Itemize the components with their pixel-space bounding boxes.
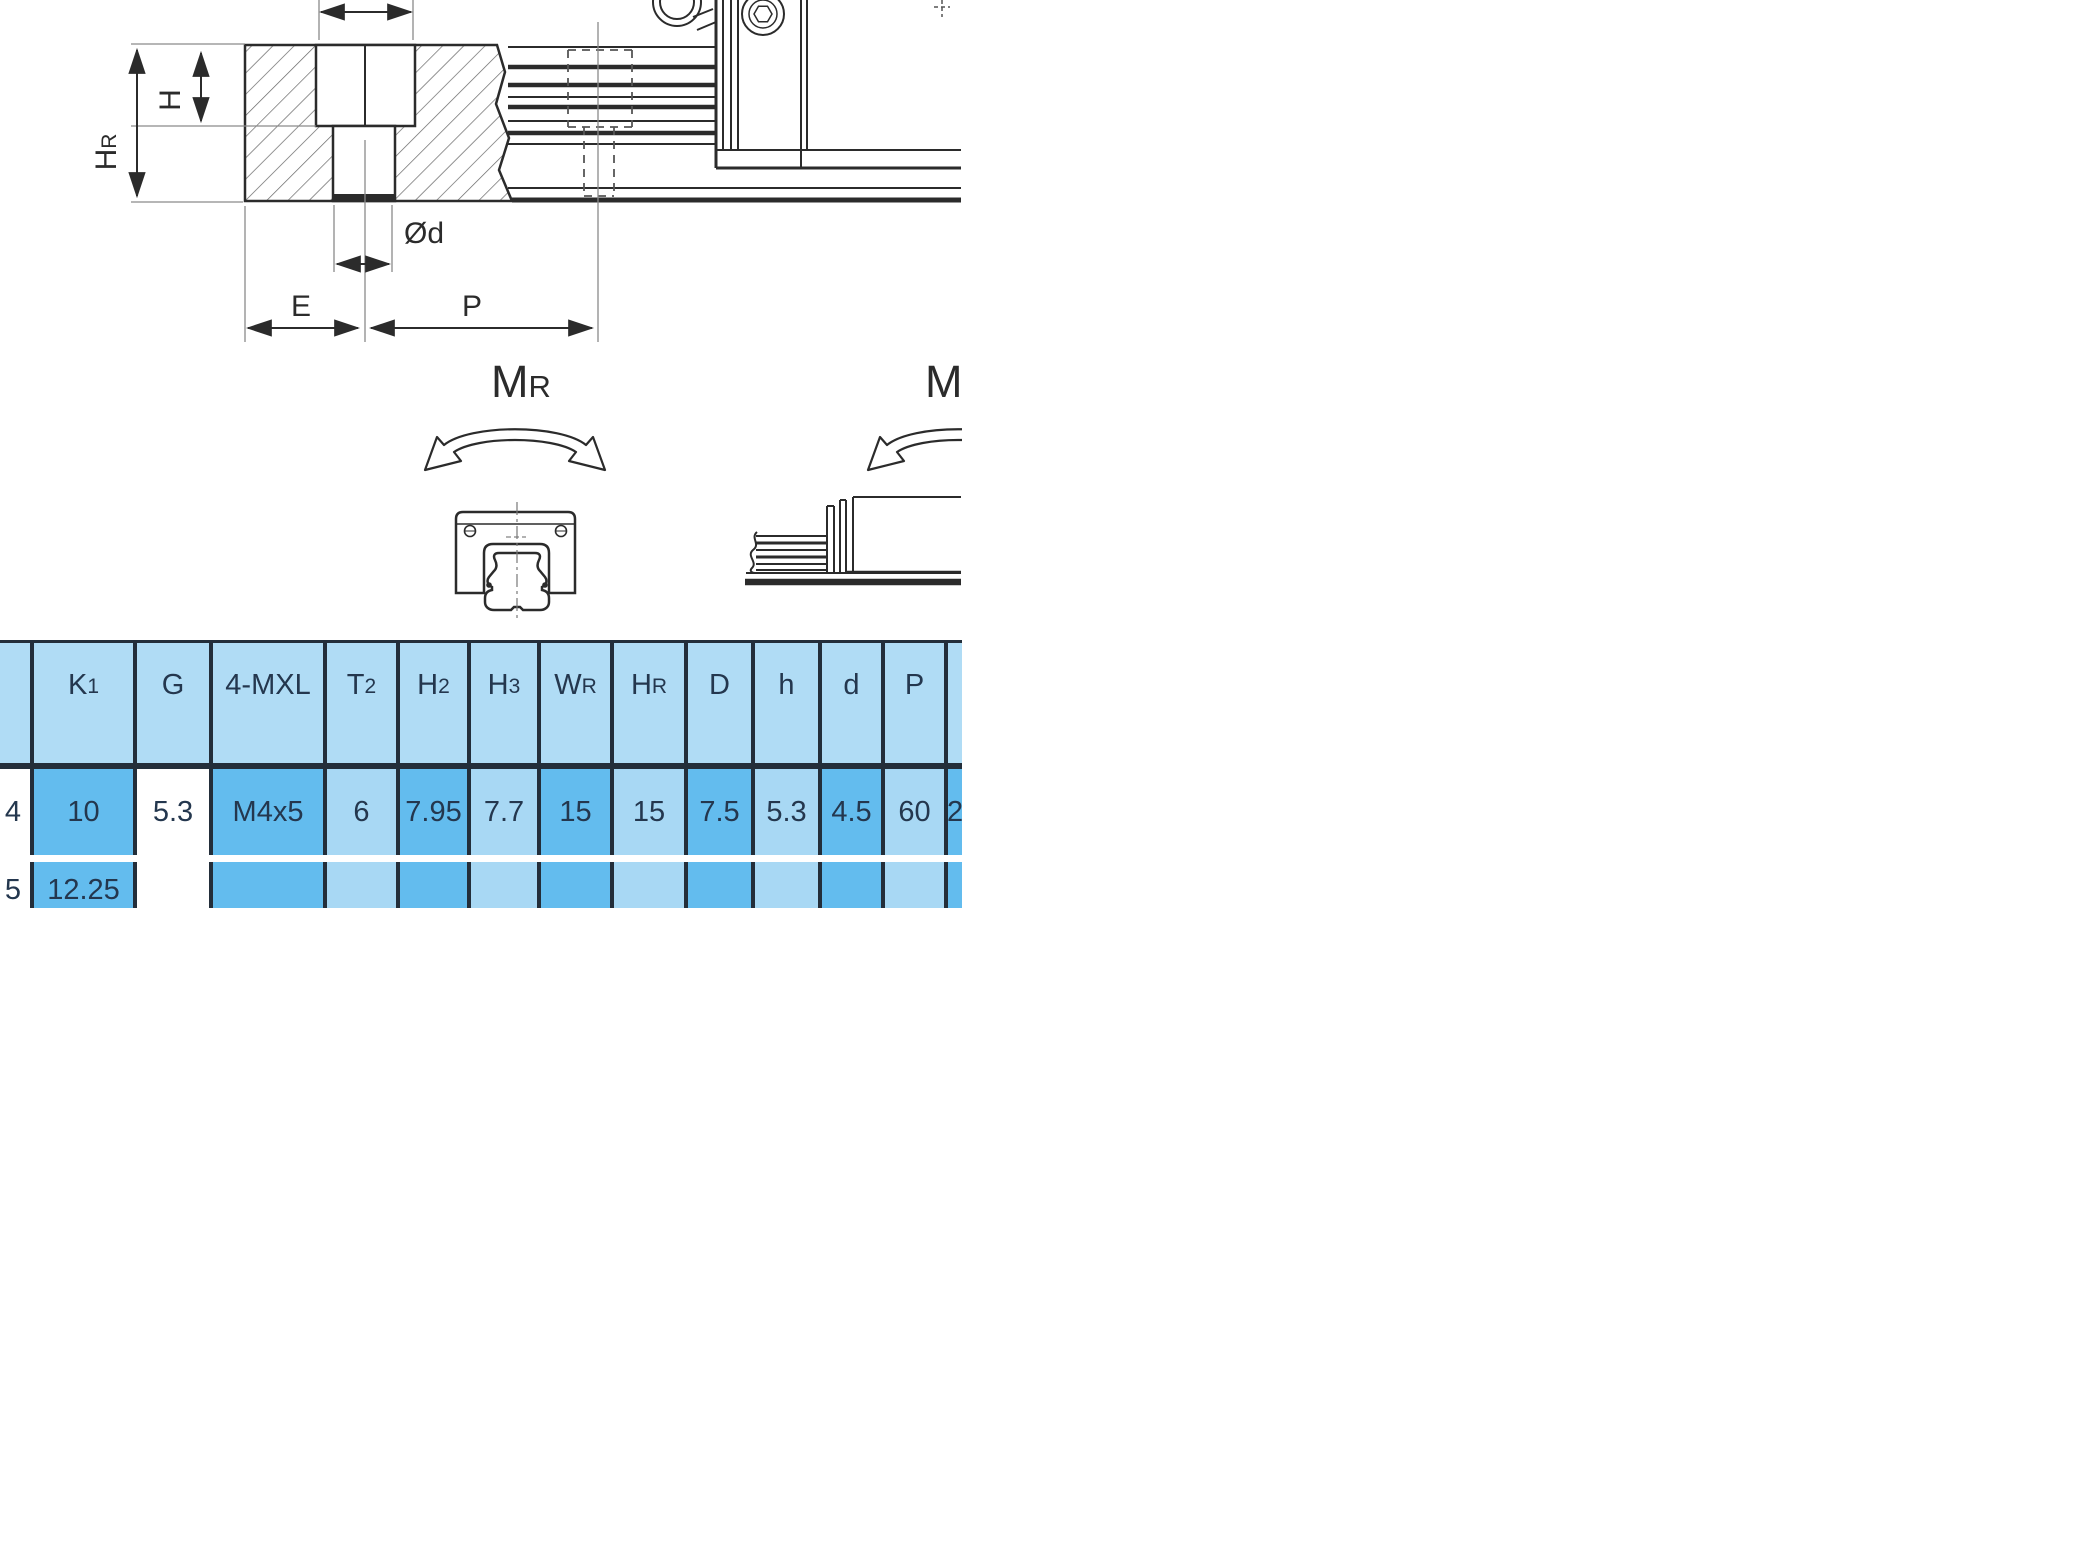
data-cell-r2-p bbox=[881, 862, 944, 908]
data-cell-r2-col13 bbox=[944, 862, 962, 908]
data-cell-r2-h bbox=[467, 862, 537, 908]
data-cell-r1-h: 5.3 bbox=[751, 769, 818, 855]
data-cell-r1-col13: 2 bbox=[944, 769, 962, 855]
data-cell-r2-d bbox=[684, 862, 751, 908]
svg-text:MR: MR bbox=[925, 356, 962, 407]
svg-text:MR: MR bbox=[491, 356, 551, 407]
row-gap bbox=[0, 855, 962, 862]
datasheet-page: HR H Ød E P MR MR bbox=[0, 0, 2080, 1560]
header-cell-t: T2 bbox=[323, 643, 396, 763]
data-cell-r2-t bbox=[323, 862, 396, 908]
spec-table: K1G4-MXLT2H2H3WRHRDhdP4105.3M4x567.957.7… bbox=[0, 640, 962, 908]
header-cell-d: D bbox=[684, 643, 751, 763]
data-cell-r1-t: 6 bbox=[323, 769, 396, 855]
header-cell-4-mxl: 4-MXL bbox=[209, 643, 323, 763]
spec-table-data-row-1: 4105.3M4x567.957.715157.55.34.5602 bbox=[0, 769, 962, 855]
mr-right-curved-arrow bbox=[868, 429, 962, 470]
header-cell-w: WR bbox=[537, 643, 610, 763]
header-cell-col13 bbox=[944, 643, 962, 763]
header-cell-col0 bbox=[0, 643, 30, 763]
header-cell-p: P bbox=[881, 643, 944, 763]
dim-label-p: P bbox=[462, 290, 482, 323]
data-cell-r2-h bbox=[396, 862, 467, 908]
data-cell-r1-k: 10 bbox=[30, 769, 133, 855]
header-cell-h: H2 bbox=[396, 643, 467, 763]
dim-label-hr: HR bbox=[90, 134, 123, 171]
rail-break-edge bbox=[751, 532, 757, 573]
rail-hidden-hole bbox=[568, 50, 632, 196]
data-cell-r2-k: 12.25 bbox=[30, 862, 133, 908]
header-cell-g: G bbox=[133, 643, 209, 763]
carriage-side-view bbox=[745, 497, 961, 582]
data-cell-r2-g bbox=[133, 862, 209, 908]
mr-left-annotation: MR bbox=[425, 356, 605, 470]
grease-point-symbol bbox=[934, 0, 950, 17]
header-cell-h: H3 bbox=[467, 643, 537, 763]
data-cell-r1-p: 60 bbox=[881, 769, 944, 855]
carriage-front-view bbox=[456, 502, 575, 622]
dim-label-od: Ød bbox=[404, 217, 444, 250]
data-cell-r2-d bbox=[818, 862, 881, 908]
dim-label-e: E bbox=[291, 290, 311, 323]
header-cell-d: d bbox=[818, 643, 881, 763]
data-cell-r2-col0: 5 bbox=[0, 862, 30, 908]
rail-side-view bbox=[508, 47, 961, 200]
bolt-hole bbox=[333, 126, 395, 201]
dim-label-h: H bbox=[154, 89, 187, 111]
data-cell-r1-d: 4.5 bbox=[818, 769, 881, 855]
data-cell-r2-h bbox=[610, 862, 684, 908]
data-cell-r1-g: 5.3 bbox=[133, 769, 209, 855]
data-cell-r1-h: 7.95 bbox=[396, 769, 467, 855]
data-cell-r2-h bbox=[751, 862, 818, 908]
header-cell-h: h bbox=[751, 643, 818, 763]
cap-screw-head bbox=[742, 0, 784, 35]
data-cell-r2-w bbox=[537, 862, 610, 908]
data-cell-r1-w: 15 bbox=[537, 769, 610, 855]
data-cell-r1-d: 7.5 bbox=[684, 769, 751, 855]
data-cell-r1-h: 15 bbox=[610, 769, 684, 855]
spec-table-header-row: K1G4-MXLT2H2H3WRHRDhdP bbox=[0, 643, 962, 763]
header-cell-h: HR bbox=[610, 643, 684, 763]
base-cross-section bbox=[245, 45, 512, 201]
mr-left-curved-arrow bbox=[425, 429, 605, 470]
data-cell-r1-col0: 4 bbox=[0, 769, 30, 855]
mr-right-annotation: MR bbox=[868, 356, 962, 470]
data-cell-r1-h: 7.7 bbox=[467, 769, 537, 855]
data-cell-r1-4-mxl: M4x5 bbox=[209, 769, 323, 855]
technical-drawing: HR H Ød E P MR MR bbox=[0, 0, 962, 632]
header-cell-k: K1 bbox=[30, 643, 133, 763]
data-cell-r2-4-mxl bbox=[209, 862, 323, 908]
spec-table-data-row-2: 512.25 bbox=[0, 862, 962, 908]
